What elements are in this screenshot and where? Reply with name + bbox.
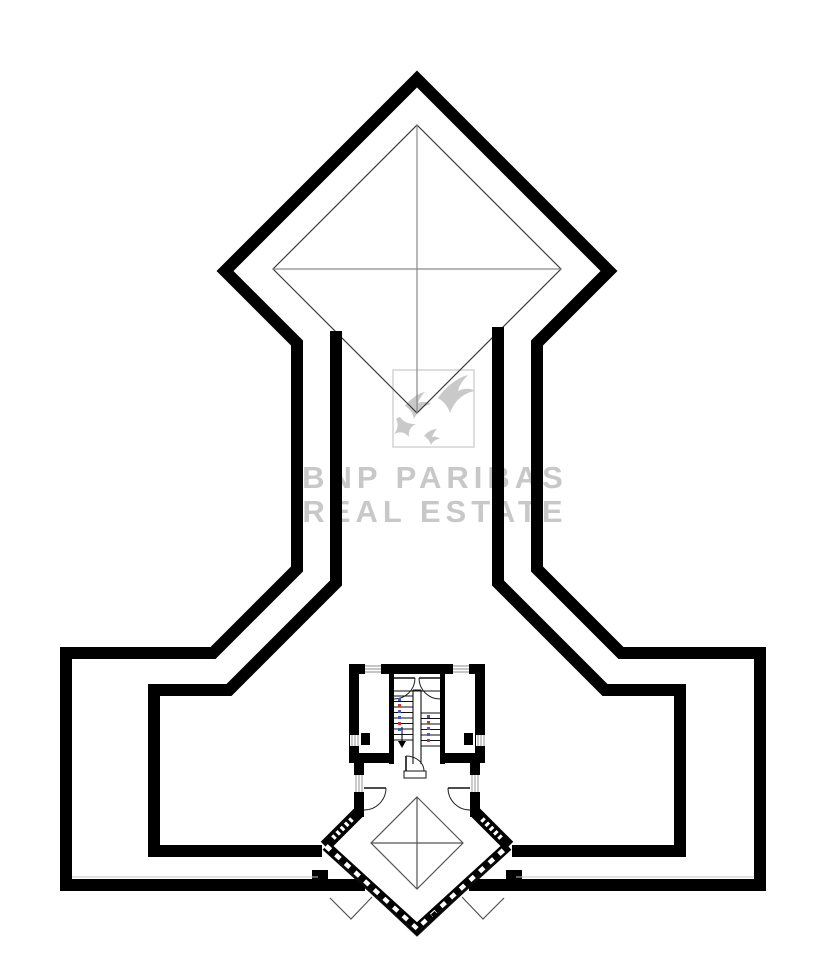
door-threshold [404,771,426,778]
exterior-step-lines [330,897,504,919]
skylight-diamond [371,797,463,889]
stairwell-wall-left [389,674,394,764]
staircase [394,678,440,778]
pier-left [361,733,370,745]
core-window-right [453,663,469,675]
inner-wall-right [498,327,680,851]
core-window-left [365,663,381,675]
stair-core [349,663,485,764]
outer-wall [66,79,760,885]
stairwell-wall-right [440,674,445,764]
bnp-paribas-birds-icon [393,370,475,447]
inner-wall-left [154,331,336,851]
wall-notch-right [506,870,522,881]
roof-diamond-lines [273,125,561,413]
floor-plan-svg [0,0,827,967]
floor-plan-canvas: BNP PARIBAS REAL ESTATE [0,0,827,967]
wall-notch-left [312,870,328,881]
pier-right [464,733,473,745]
